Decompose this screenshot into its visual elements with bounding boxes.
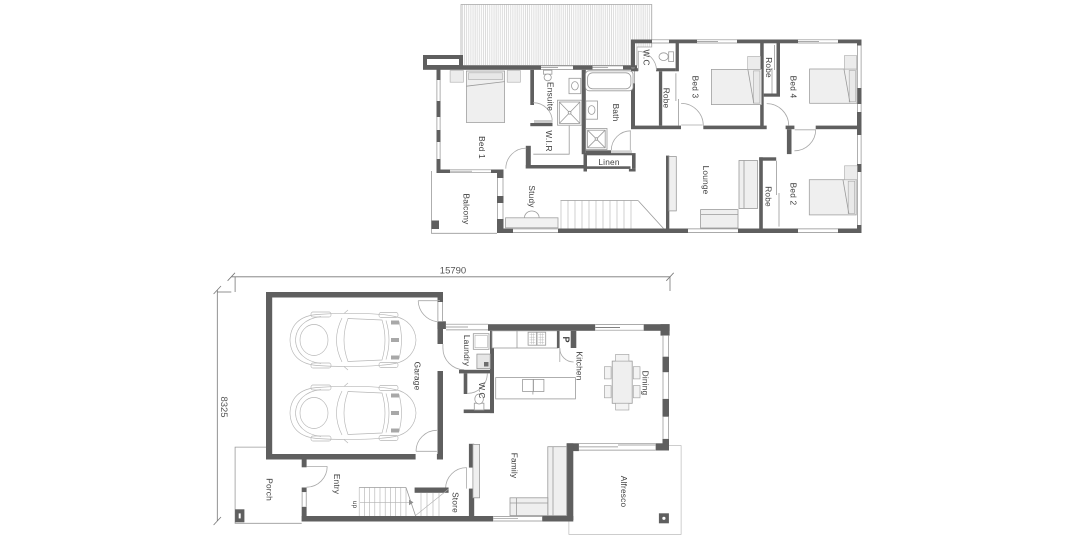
svg-text:Bed 4: Bed 4 [789,76,799,99]
svg-text:Alfresco: Alfresco [619,476,629,508]
svg-text:Study: Study [527,185,537,208]
svg-text:Bed 1: Bed 1 [477,136,487,159]
svg-text:Linen: Linen [598,157,619,167]
svg-text:W.I.R: W.I.R [544,130,554,151]
svg-text:8325: 8325 [218,396,229,417]
svg-text:Dining: Dining [641,371,651,396]
svg-text:Garage: Garage [413,362,423,391]
svg-text:Family: Family [510,453,520,479]
svg-text:W.C: W.C [477,382,487,398]
svg-text:P: P [561,336,571,342]
svg-text:Bed 3: Bed 3 [691,76,701,99]
svg-text:Porch: Porch [264,478,274,501]
svg-text:Bath: Bath [611,104,621,122]
svg-text:up: up [351,501,358,509]
svg-text:Ensuite: Ensuite [546,82,556,111]
svg-text:Bed 2: Bed 2 [789,183,799,206]
svg-text:Store: Store [451,492,461,513]
svg-text:W.C: W.C [642,49,652,65]
svg-text:Lounge: Lounge [701,166,711,195]
svg-text:Robe: Robe [764,186,774,207]
svg-text:Balcony: Balcony [462,194,472,226]
svg-text:Kitchen: Kitchen [575,351,585,380]
svg-text:Laundry: Laundry [462,335,472,367]
svg-text:Robe: Robe [764,57,774,78]
svg-text:15790: 15790 [440,266,466,277]
svg-text:Entry: Entry [332,474,342,495]
svg-text:Robe: Robe [662,88,672,109]
